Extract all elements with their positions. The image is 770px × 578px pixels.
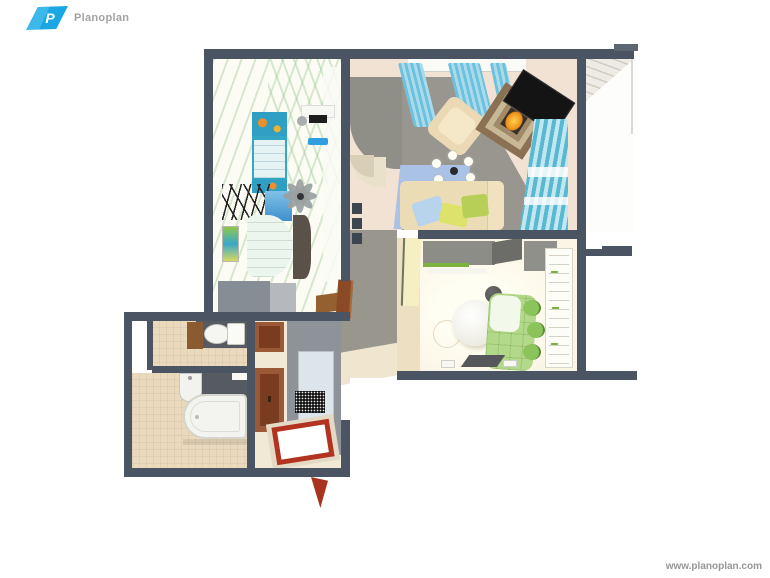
kids-bed-quilt [254, 140, 285, 178]
bathtub [183, 394, 247, 439]
room-living [350, 59, 577, 230]
wall-top-right-step [614, 44, 638, 51]
wall-niche [352, 203, 362, 214]
kids-bed-pillow-end [252, 112, 287, 136]
chandelier-bulb [448, 151, 457, 160]
green-chair-cushion [527, 322, 545, 338]
watermark-url: www.planoplan.com [666, 561, 762, 572]
bathroom-shelf [232, 373, 247, 380]
toilet-wood-cabinet [187, 322, 203, 349]
kitchen-cabinet-long [423, 241, 495, 265]
kitchen-counter-items [427, 268, 487, 274]
toilet-tank [227, 323, 245, 345]
hall-white-face [350, 378, 420, 428]
green-chair-cushion [523, 300, 541, 316]
fan-hub [297, 193, 304, 200]
chandelier-bulb [432, 159, 441, 168]
nursery-blue-wall-shelf [308, 138, 328, 145]
floor-paper [441, 360, 455, 368]
black-doormat [295, 391, 325, 413]
wall-toilet-bath-divider [152, 366, 250, 373]
kitchen-dark-box [492, 238, 522, 265]
apartment-floorplan [0, 0, 770, 578]
wall-right-stub-cap [602, 246, 632, 255]
bathtub-shadow [183, 439, 247, 445]
balcony-glazing-edge [631, 59, 633, 134]
door-knob [268, 396, 271, 402]
duct-shaft [132, 321, 147, 366]
floor-paper [503, 360, 517, 367]
wall-bath-hallway-divider [247, 312, 255, 477]
wall-bottom [124, 468, 350, 477]
wall-bath-left [124, 312, 132, 477]
nursery-ceiling-fan [281, 177, 319, 215]
chandelier-bulb [464, 157, 473, 166]
room-nursery [213, 59, 341, 312]
nursery-desk-chair [297, 116, 307, 126]
wall-left-upper [204, 49, 213, 313]
living-sofa [400, 181, 504, 230]
wall-shaft-edge [147, 312, 153, 370]
wall-living-kitchen-divider [418, 230, 577, 239]
curtain-gap [528, 167, 568, 177]
wall-top [204, 49, 634, 59]
nursery-sideboard [218, 281, 270, 312]
planoplan-render-viewport: P Planoplan [0, 0, 770, 578]
kitchen-bookshelf [545, 248, 573, 368]
sink-faucet [188, 376, 192, 380]
book-green [552, 307, 559, 309]
sofa-armrest [487, 181, 504, 230]
nursery-sideboard-light [270, 283, 296, 312]
room-bathroom [132, 373, 247, 468]
yellow-door-panel [401, 238, 421, 306]
room-balcony [586, 59, 634, 232]
nursery-keyboard [309, 115, 327, 123]
book-green [551, 343, 558, 345]
wall-niche [352, 218, 362, 229]
green-chair-cushion [523, 344, 541, 360]
balcony-brick-ceiling [586, 59, 634, 101]
open-entry-door [311, 477, 328, 508]
wall-kitchen-bottom [397, 371, 637, 380]
wall-nursery-living-divider [341, 49, 350, 281]
room-kitchen-diner [397, 238, 577, 371]
wall-niche [352, 233, 362, 244]
nursery-dark-screen [293, 215, 311, 279]
nursery-wardrobe [323, 67, 341, 282]
curtain-gap [524, 197, 568, 205]
wooden-door-upper [255, 322, 284, 352]
wall-bath-block-top [124, 312, 350, 321]
counter-step-inner [350, 155, 374, 177]
door-panel [259, 326, 280, 348]
bathtub-drain [195, 415, 199, 419]
banquette-white-quilt [489, 295, 521, 333]
wall-hallway-right-lower [341, 420, 350, 476]
sofa-pillow-green [461, 194, 489, 219]
room-toilet [152, 321, 247, 366]
book-green [551, 271, 558, 273]
room-hallway [255, 321, 341, 468]
armchair-seat [436, 105, 478, 147]
chandelier-hub [450, 167, 458, 175]
kitchen-cabinet-green-strip [423, 263, 469, 267]
wall-right-main [577, 49, 586, 378]
nursery-wall-art [222, 226, 239, 262]
